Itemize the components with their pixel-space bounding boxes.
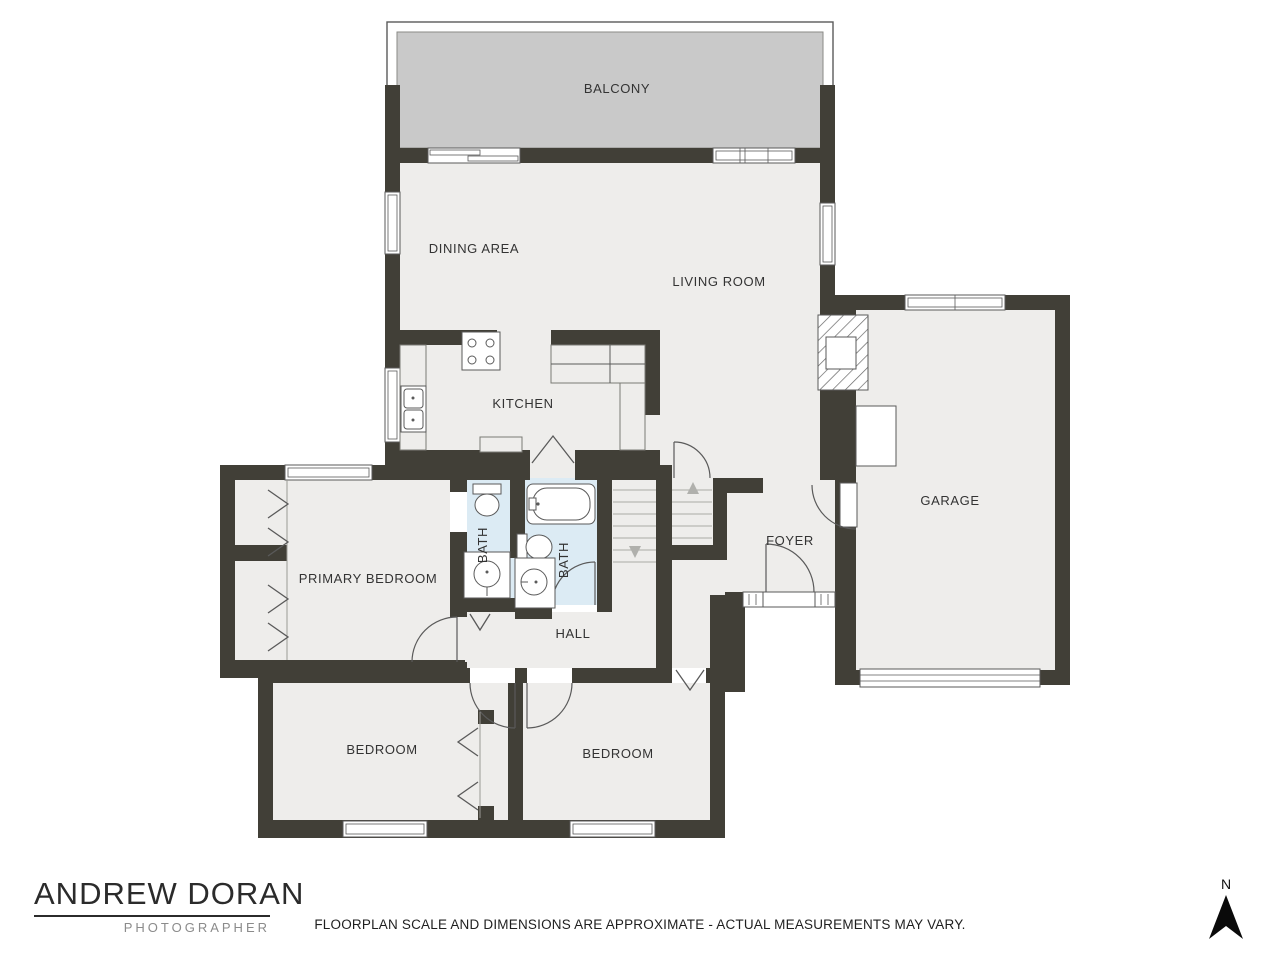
foyer-label: FOYER — [766, 533, 814, 548]
floorplan-svg: BALCONY — [0, 0, 1280, 960]
dining-window — [385, 192, 400, 254]
primary-bedroom-label: PRIMARY BEDROOM — [299, 571, 438, 586]
living-side-window — [820, 203, 835, 265]
hall-label: HALL — [556, 626, 591, 641]
sliding-door — [428, 148, 520, 163]
primary-window — [285, 465, 372, 480]
floor-slabs — [235, 163, 1055, 820]
disclaimer: FLOORPLAN SCALE AND DIMENSIONS ARE APPRO… — [295, 917, 985, 932]
fireplace — [818, 315, 868, 390]
vanity-sink — [515, 558, 555, 608]
logo: ANDREW DORAN PHOTOGRAPHER — [34, 876, 270, 935]
logo-name: ANDREW DORAN — [34, 876, 270, 917]
room-balcony: BALCONY — [387, 22, 833, 150]
toilet — [473, 484, 501, 516]
living-label: LIVING ROOM — [672, 274, 765, 289]
stove — [462, 332, 500, 370]
kitchen-sink — [401, 386, 426, 432]
bedroom-right-window — [570, 821, 655, 837]
bedroom-left-window — [343, 821, 427, 837]
kitchen-window — [385, 368, 400, 442]
bathtub — [527, 484, 595, 524]
north-arrow-icon — [1196, 893, 1256, 941]
garage-storage — [856, 406, 896, 466]
dining-label: DINING AREA — [429, 241, 519, 256]
bath-right-label: BATH — [556, 542, 571, 578]
compass-label: N — [1196, 876, 1256, 892]
balcony-label: BALCONY — [584, 81, 650, 96]
kitchen-label: KITCHEN — [492, 396, 553, 411]
floorplan-page: BALCONY — [0, 0, 1280, 960]
bedroom-right-label: BEDROOM — [582, 746, 653, 761]
bath-left-label: BATH — [475, 527, 490, 563]
bedroom-left-label: BEDROOM — [346, 742, 417, 757]
garage-window — [905, 295, 1005, 310]
toilet — [517, 534, 552, 560]
garage-door — [860, 669, 1040, 687]
logo-tagline: PHOTOGRAPHER — [34, 920, 270, 935]
living-window — [713, 148, 795, 163]
compass: N — [1196, 876, 1256, 946]
garage-label: GARAGE — [920, 493, 979, 508]
